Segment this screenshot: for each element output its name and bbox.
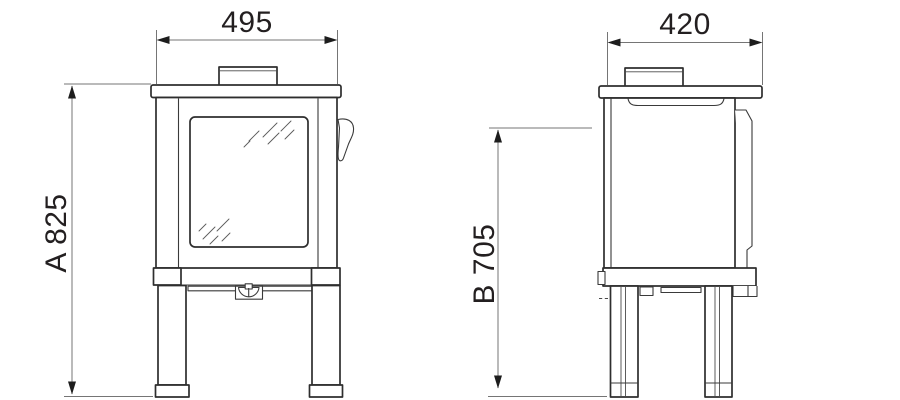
dimension-secondary-height: B 705: [468, 128, 607, 397]
side-view: [598, 68, 762, 397]
front-right-foot: [310, 385, 343, 397]
side-front-leg: [611, 286, 639, 397]
side-front-tab: [598, 272, 605, 285]
secondary-height-label: B 705: [468, 224, 501, 305]
side-top-plate: [599, 86, 762, 98]
drawing-canvas: 495 420 A 825 B 705: [0, 0, 900, 400]
door-handle: [338, 119, 354, 161]
underbody-rail: [661, 288, 701, 293]
overall-height-label: A 825: [40, 193, 73, 272]
front-flue-collar: [219, 67, 277, 86]
side-rear-panel: [735, 110, 752, 268]
front-door-glass: [190, 117, 308, 247]
front-top-plate: [151, 85, 341, 98]
side-rear-leg: [705, 286, 732, 397]
front-left-leg-bracket: [154, 268, 182, 285]
side-body: [604, 98, 735, 268]
stove-dimension-drawing: 495 420 A 825 B 705: [0, 0, 900, 400]
side-bottom-band: [603, 268, 756, 286]
front-view: [151, 67, 354, 397]
front-left-leg: [158, 286, 186, 386]
underbody-bracket: [640, 287, 653, 296]
side-flue-collar: [625, 68, 683, 87]
front-width-label: 495: [221, 6, 273, 39]
front-right-leg-bracket: [312, 268, 341, 285]
side-depth-label: 420: [659, 8, 711, 41]
front-right-leg: [312, 286, 340, 386]
side-rear-bracket: [733, 286, 757, 297]
front-left-foot: [156, 385, 190, 397]
dimension-overall-height: A 825: [40, 84, 153, 397]
